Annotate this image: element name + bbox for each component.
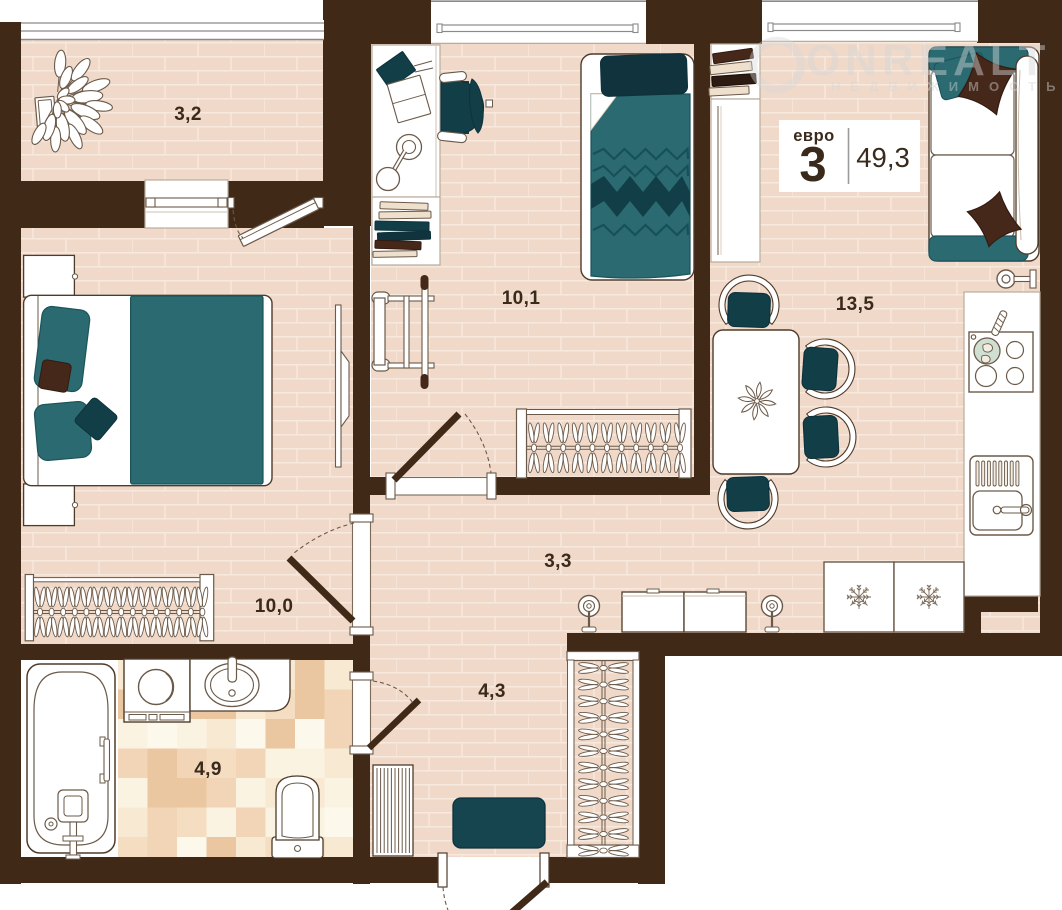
svg-text:10,0: 10,0	[255, 596, 294, 617]
svg-text:10,1: 10,1	[502, 288, 541, 309]
svg-text:3,3: 3,3	[544, 551, 572, 572]
svg-text:49,3: 49,3	[856, 142, 910, 173]
svg-text:НЕДВИЖИМОСТЬ: НЕДВИЖИМОСТЬ	[831, 79, 1062, 94]
svg-text:3,2: 3,2	[174, 104, 202, 125]
svg-text:3: 3	[799, 138, 826, 192]
svg-text:ONREALT: ONREALT	[806, 36, 1050, 85]
svg-text:4,9: 4,9	[194, 759, 222, 780]
svg-text:4,3: 4,3	[478, 681, 506, 702]
svg-text:13,5: 13,5	[836, 294, 875, 315]
